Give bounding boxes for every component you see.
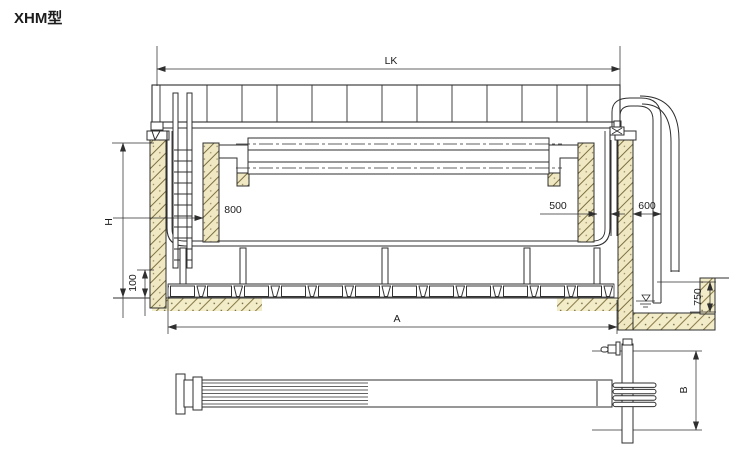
dim-label-a: A (393, 313, 400, 325)
heater-tube-striations (202, 383, 368, 404)
dim-label-b: B (678, 386, 690, 393)
heater-flange (176, 374, 202, 414)
dim-label-h: H (103, 218, 115, 226)
heater-fingers (613, 383, 656, 407)
technical-drawing: LK H 800 500 600 100 A 750 B XHM型 (0, 0, 732, 450)
dim-label-800: 800 (224, 204, 242, 216)
dim-label-500: 500 (549, 200, 567, 212)
drawing-page: LK H 800 500 600 100 A 750 B XHM型 (0, 0, 732, 450)
support-frame (168, 248, 614, 297)
water-level-mark (636, 295, 655, 307)
anode-rails (236, 138, 562, 174)
support-columns (203, 143, 594, 242)
dim-label-100: 100 (127, 274, 139, 292)
heater-assembly (176, 339, 656, 443)
tank-cover (152, 85, 620, 128)
page-title: XHM型 (14, 9, 62, 27)
dim-label-600: 600 (638, 200, 656, 212)
dim-label-lk: LK (385, 55, 398, 67)
dim-label-750: 750 (692, 288, 704, 306)
